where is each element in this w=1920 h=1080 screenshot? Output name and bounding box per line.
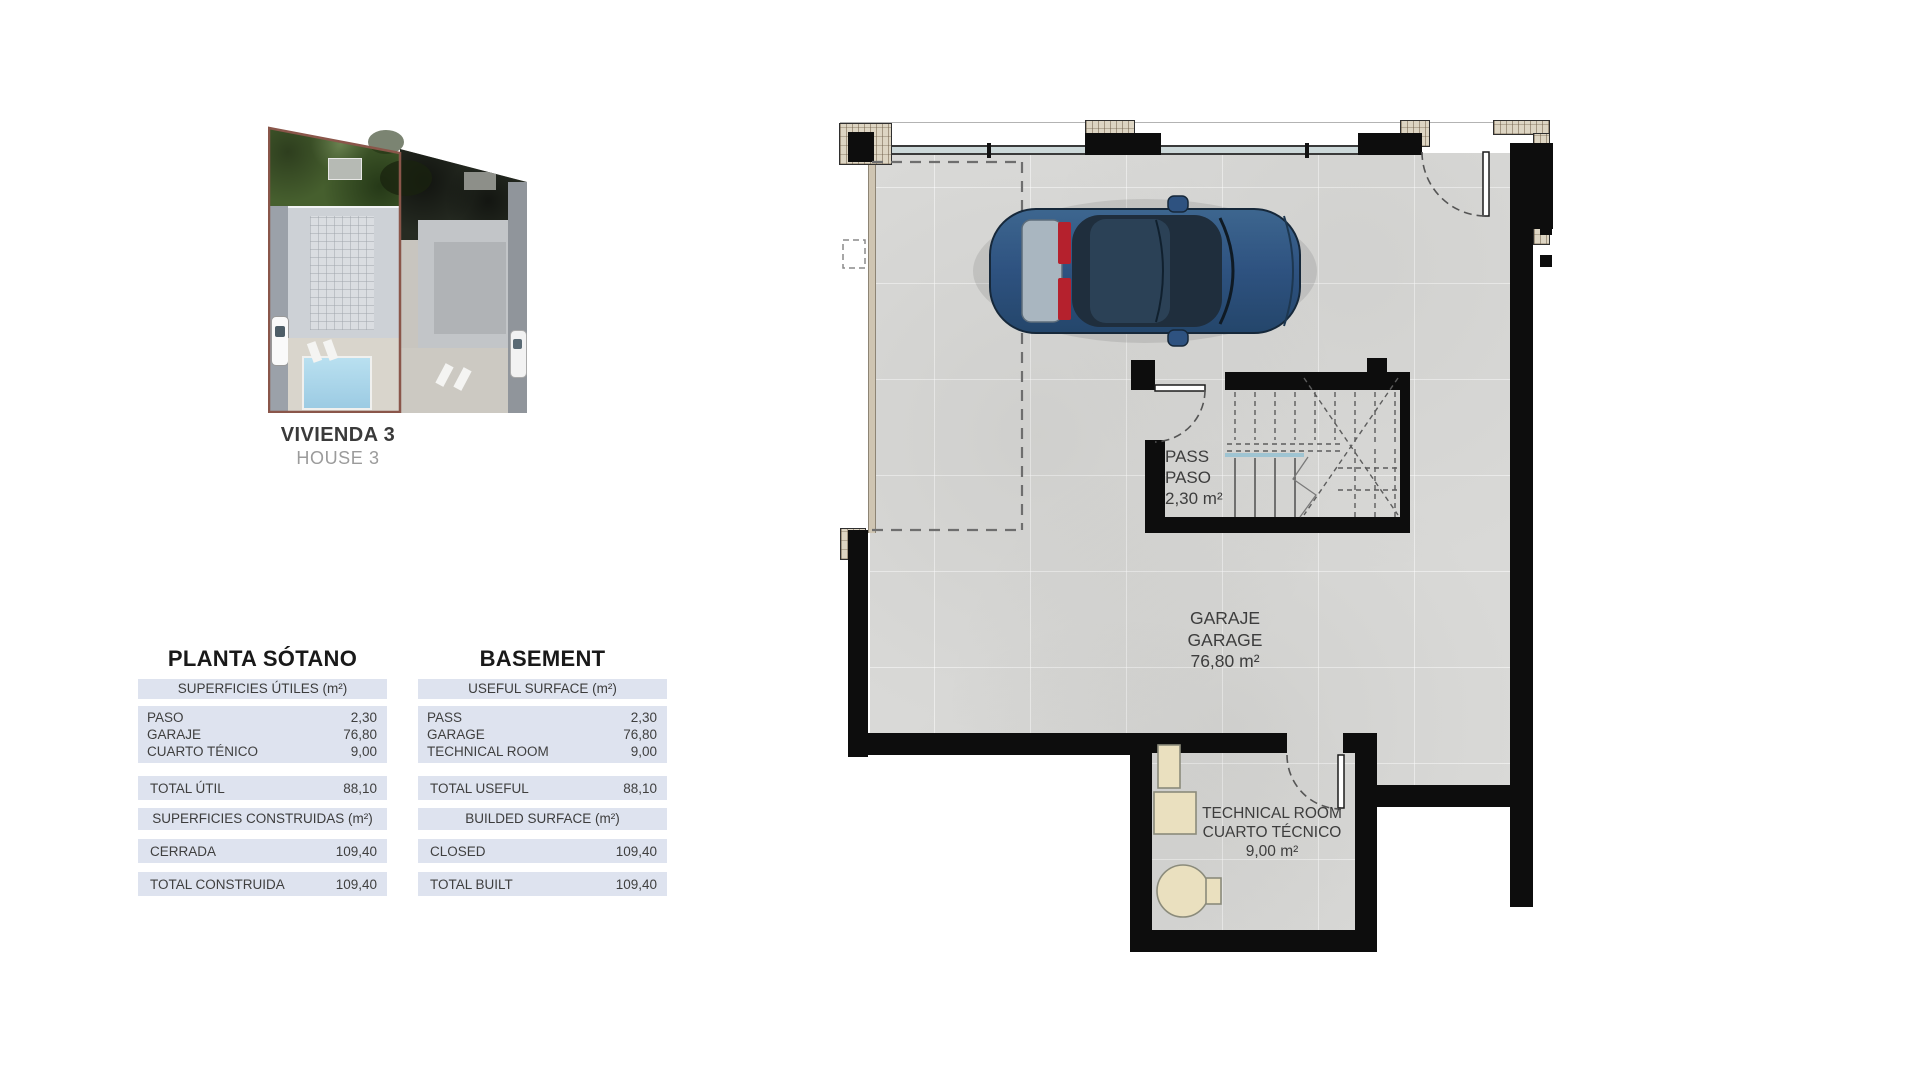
- table-title: BASEMENT: [418, 646, 667, 676]
- stair-bottom-wall: [1145, 517, 1410, 533]
- neighbor-car: [510, 330, 527, 378]
- wall-nub: [1540, 222, 1552, 235]
- built-surface-header: SUPERFICIES CONSTRUIDAS (m²): [138, 808, 387, 830]
- garage-room-label: GARAJE GARAGE 76,80 m²: [1125, 608, 1325, 673]
- surface-table-english: BASEMENT USEFUL SURFACE (m²) PASS2,30 GA…: [418, 646, 667, 896]
- neighbor-driveway: [508, 182, 527, 413]
- total-built-row: TOTAL BUILT109,40: [418, 872, 667, 896]
- techroom-bottom-wall: [1130, 930, 1377, 952]
- stair-right-wall: [1400, 372, 1410, 533]
- closed-row: CERRADA109,40: [138, 839, 387, 863]
- house3-roof-tiles: [310, 216, 374, 330]
- neighbor-patio: [464, 172, 496, 190]
- total-useful-row: TOTAL USEFUL88,10: [418, 776, 667, 800]
- thumbnail-caption: VIVIENDA 3 HOUSE 3: [268, 424, 408, 469]
- useful-surface-header: SUPERFICIES ÚTILES (m²): [138, 679, 387, 699]
- roof-overhang-line: [840, 122, 1550, 123]
- table-row: GARAJE76,80: [138, 726, 387, 743]
- left-wall: [848, 530, 868, 757]
- neighbor-terrace: [400, 348, 508, 413]
- ramp-edge-wall: [868, 163, 876, 533]
- stair-wall-stub: [1367, 358, 1387, 372]
- table-row: PASS2,30: [418, 709, 667, 726]
- room-rows: PASO2,30 GARAJE76,80 CUARTO TÉNICO9,00: [138, 706, 387, 763]
- table-row: TECHNICAL ROOM9,00: [418, 743, 667, 760]
- house3-driveway: [269, 206, 288, 413]
- room-rows: PASS2,30 GARAGE76,80 TECHNICAL ROOM9,00: [418, 706, 667, 763]
- bottom-right-wall: [1377, 785, 1510, 807]
- dashed-marker: [843, 240, 865, 268]
- bottom-wall: [848, 733, 1139, 755]
- stair-wall-stub: [1131, 360, 1155, 390]
- stair-top-wall: [1225, 372, 1410, 390]
- table-row: CUARTO TÉNICO9,00: [138, 743, 387, 760]
- floor-plan: PASS PASO 2,30 m² GARAJE GARAGE 76,80 m²…: [838, 116, 1553, 956]
- house3-patio: [328, 158, 362, 180]
- wall-segment: [848, 132, 874, 162]
- useful-surface-header: USEFUL SURFACE (m²): [418, 679, 667, 699]
- wall-segment: [1358, 133, 1422, 155]
- mullion-tick: [1305, 143, 1309, 158]
- house3-pool: [302, 356, 372, 410]
- total-built-row: TOTAL CONSTRUIDA109,40: [138, 872, 387, 896]
- total-useful-row: TOTAL ÚTIL88,10: [138, 776, 387, 800]
- house3-car: [271, 316, 289, 366]
- page: VIVIENDA 3 HOUSE 3 PLANTA SÓTANO SUPERFI…: [0, 0, 1920, 1080]
- techroom-top-wall: [1343, 733, 1377, 753]
- built-surface-header: BUILDED SURFACE (m²): [418, 808, 667, 830]
- table-row: PASO2,30: [138, 709, 387, 726]
- table-row: GARAGE76,80: [418, 726, 667, 743]
- wall-nub: [1540, 255, 1552, 267]
- mullion-tick: [987, 143, 991, 158]
- stair-left-wall: [1145, 440, 1165, 519]
- thumbnail-subtitle: HOUSE 3: [268, 448, 408, 469]
- neighbor-roof-tiles: [434, 242, 506, 334]
- table-title: PLANTA SÓTANO: [138, 646, 387, 676]
- closed-row: CLOSED109,40: [418, 839, 667, 863]
- thumbnail-title: VIVIENDA 3: [268, 424, 408, 447]
- techroom-left-wall: [1130, 733, 1152, 952]
- pass-room-label: PASS PASO 2,30 m²: [1165, 446, 1265, 509]
- right-wall: [1510, 152, 1533, 907]
- techroom-top-wall: [1152, 733, 1287, 753]
- surface-table-spanish: PLANTA SÓTANO SUPERFICIES ÚTILES (m²) PA…: [138, 646, 387, 896]
- technical-room-label: TECHNICAL ROOM CUARTO TÉCNICO 9,00 m²: [1172, 804, 1372, 862]
- wall-segment: [1085, 133, 1161, 155]
- site-plan-thumbnail: [268, 120, 527, 413]
